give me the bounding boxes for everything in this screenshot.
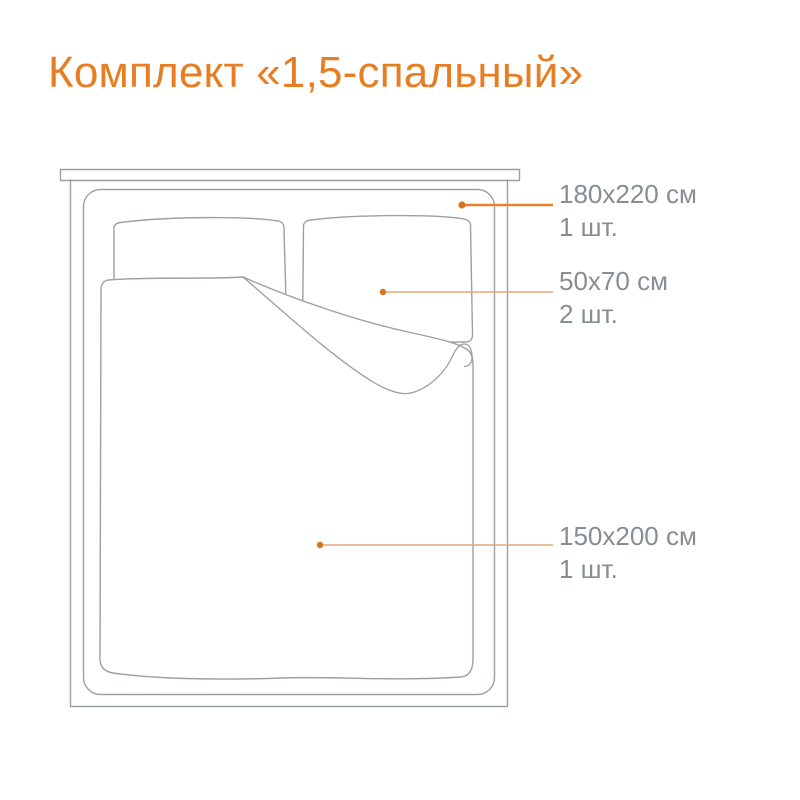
callout-dot-3 xyxy=(317,542,323,548)
bed-linen-diagram xyxy=(0,0,800,800)
callout-label-pillowcase: 50х70 см 2 шт. xyxy=(559,265,668,331)
callout-dot-2 xyxy=(380,289,386,295)
item-quantity: 1 шт. xyxy=(559,211,697,244)
item-quantity: 2 шт. xyxy=(559,298,668,331)
headboard xyxy=(61,170,520,181)
product-diagram-page: Комплект «1,5-спальный» 180х220 см 1 шт.… xyxy=(0,0,800,800)
callout-label-sheet: 150х200 см 1 шт. xyxy=(559,520,697,586)
item-size: 150х200 см xyxy=(559,520,697,553)
item-size: 50х70 см xyxy=(559,265,668,298)
item-size: 180х220 см xyxy=(559,178,697,211)
item-quantity: 1 шт. xyxy=(559,553,697,586)
callout-dot-1 xyxy=(458,201,465,208)
duvet xyxy=(100,277,473,679)
callout-label-duvet-cover: 180х220 см 1 шт. xyxy=(559,178,697,244)
